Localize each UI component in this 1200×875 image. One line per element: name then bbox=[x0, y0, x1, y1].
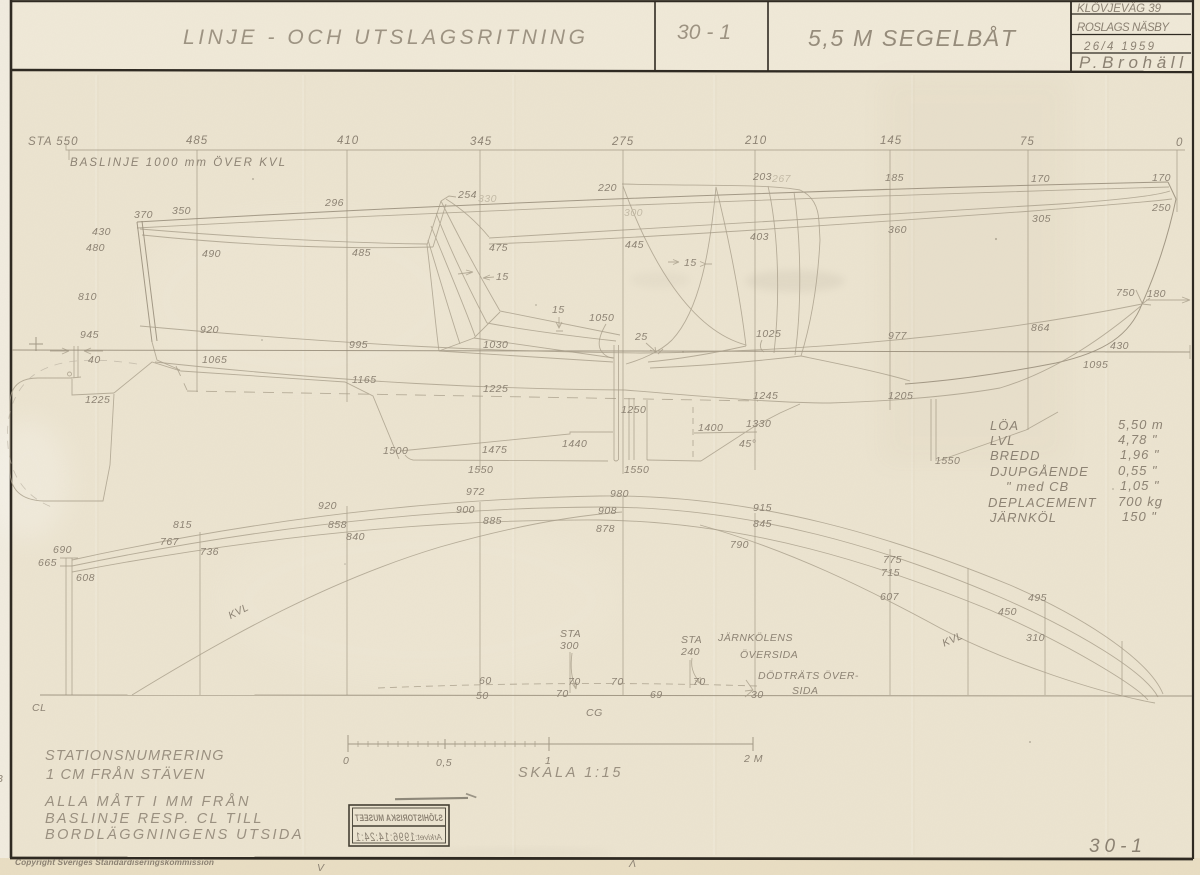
svg-text:26/4 1959: 26/4 1959 bbox=[1083, 41, 1155, 53]
svg-text:1550: 1550 bbox=[468, 464, 493, 476]
svg-text:1050: 1050 bbox=[589, 312, 614, 324]
svg-text:150 ": 150 " bbox=[1122, 509, 1157, 524]
svg-text:480: 480 bbox=[86, 242, 105, 254]
svg-text:845: 845 bbox=[753, 518, 772, 530]
svg-text:Arkivet:: Arkivet: bbox=[415, 833, 443, 842]
svg-text:495: 495 bbox=[1028, 592, 1047, 604]
svg-text:ÖVERSIDA: ÖVERSIDA bbox=[740, 649, 798, 661]
svg-text:840: 840 bbox=[346, 531, 365, 543]
svg-text:300: 300 bbox=[624, 207, 643, 219]
svg-text:30-1: 30-1 bbox=[1089, 836, 1144, 857]
svg-text:Λ: Λ bbox=[628, 858, 637, 870]
svg-text:SJÖHISTORISKA MUSEET: SJÖHISTORISKA MUSEET bbox=[354, 813, 443, 823]
svg-text:40: 40 bbox=[88, 354, 101, 366]
svg-text:STA 550: STA 550 bbox=[28, 136, 78, 148]
svg-text:1225: 1225 bbox=[85, 394, 110, 406]
svg-text:1165: 1165 bbox=[352, 374, 377, 386]
svg-text:DÖDTRÄTS ÖVER-: DÖDTRÄTS ÖVER- bbox=[758, 670, 859, 682]
svg-text:145: 145 bbox=[880, 135, 902, 147]
svg-text:345: 345 bbox=[470, 136, 492, 148]
svg-text:485: 485 bbox=[352, 247, 371, 259]
svg-text:775: 775 bbox=[883, 554, 902, 566]
svg-text:15: 15 bbox=[684, 257, 697, 269]
svg-text:2 M: 2 M bbox=[743, 753, 763, 765]
svg-text:1440: 1440 bbox=[562, 438, 587, 450]
svg-text:180: 180 bbox=[1147, 288, 1166, 300]
svg-text:915: 915 bbox=[753, 502, 772, 514]
svg-text:SKALA 1:15: SKALA 1:15 bbox=[518, 765, 622, 781]
svg-text:70: 70 bbox=[556, 688, 569, 700]
svg-text:430: 430 bbox=[1110, 340, 1129, 352]
svg-text:1475: 1475 bbox=[482, 444, 507, 456]
svg-text:475: 475 bbox=[489, 242, 508, 254]
svg-text:445: 445 bbox=[625, 239, 644, 251]
svg-text:0,55 ": 0,55 " bbox=[1118, 463, 1158, 478]
svg-text:665: 665 bbox=[38, 557, 57, 569]
svg-text:700 kg: 700 kg bbox=[1118, 494, 1163, 509]
svg-text:1550: 1550 bbox=[935, 455, 960, 467]
svg-text:5,5 M SEGELBÅT: 5,5 M SEGELBÅT bbox=[808, 24, 1018, 51]
svg-text:STA: STA bbox=[560, 628, 581, 640]
svg-text:60: 60 bbox=[479, 675, 492, 687]
svg-text:1245: 1245 bbox=[753, 390, 778, 402]
svg-text:1 CM FRÅN STÄVEN: 1 CM FRÅN STÄVEN bbox=[46, 766, 206, 783]
svg-text:885: 885 bbox=[483, 515, 502, 527]
svg-text:485: 485 bbox=[186, 135, 208, 147]
svg-text:170: 170 bbox=[1031, 173, 1050, 185]
svg-text:" med CB: " med CB bbox=[1006, 479, 1069, 494]
svg-text:240: 240 bbox=[680, 646, 700, 658]
svg-text:995: 995 bbox=[349, 339, 368, 351]
svg-text:50: 50 bbox=[476, 690, 489, 702]
svg-text:310: 310 bbox=[1026, 632, 1045, 644]
svg-text:607: 607 bbox=[880, 591, 900, 603]
svg-text:370: 370 bbox=[134, 209, 153, 221]
svg-text:JÄRNKÖL: JÄRNKÖL bbox=[989, 510, 1057, 525]
svg-text:0: 0 bbox=[1176, 137, 1183, 149]
svg-text:70: 70 bbox=[611, 676, 624, 688]
svg-text:920: 920 bbox=[200, 324, 219, 336]
svg-text:BASLINJE 1000 mm ÖVER KVL: BASLINJE 1000 mm ÖVER KVL bbox=[70, 157, 286, 169]
svg-text:1025: 1025 bbox=[756, 328, 781, 340]
svg-text:815: 815 bbox=[173, 519, 192, 531]
svg-text:1065: 1065 bbox=[202, 354, 227, 366]
svg-text:977: 977 bbox=[888, 330, 908, 342]
svg-text:1550: 1550 bbox=[624, 464, 649, 476]
svg-text:BORDLÄGGNINGENS UTSIDA: BORDLÄGGNINGENS UTSIDA bbox=[45, 826, 303, 843]
svg-text:15: 15 bbox=[496, 271, 509, 283]
svg-text:JÄRNKÖLENS: JÄRNKÖLENS bbox=[717, 632, 793, 644]
svg-text:1,05 ": 1,05 " bbox=[1120, 478, 1160, 493]
svg-text:972: 972 bbox=[466, 486, 485, 498]
svg-text:KLÖVJEVÄG 39: KLÖVJEVÄG 39 bbox=[1077, 3, 1162, 15]
svg-text:70: 70 bbox=[568, 676, 581, 688]
svg-text:715: 715 bbox=[881, 567, 900, 579]
svg-text:45°: 45° bbox=[739, 438, 756, 450]
svg-text:75: 75 bbox=[1020, 136, 1035, 148]
svg-text:403: 403 bbox=[750, 231, 769, 243]
svg-text:254: 254 bbox=[457, 189, 477, 201]
svg-text:864: 864 bbox=[1031, 322, 1050, 334]
svg-text:5,50 m: 5,50 m bbox=[1118, 417, 1164, 432]
svg-text:490: 490 bbox=[202, 248, 221, 260]
svg-text:810: 810 bbox=[78, 291, 97, 303]
svg-text:25: 25 bbox=[634, 331, 648, 343]
svg-text:410: 410 bbox=[337, 135, 359, 147]
svg-text:690: 690 bbox=[53, 544, 72, 556]
svg-text:0,5: 0,5 bbox=[436, 757, 452, 769]
svg-text:V: V bbox=[317, 862, 325, 874]
svg-text:296: 296 bbox=[324, 197, 344, 209]
svg-text:CG: CG bbox=[586, 707, 603, 719]
svg-text:430: 430 bbox=[92, 226, 111, 238]
svg-text:BASLINJE RESP. CL TILL: BASLINJE RESP. CL TILL bbox=[45, 811, 263, 827]
svg-text:ALLA MÅTT I MM FRÅN: ALLA MÅTT I MM FRÅN bbox=[44, 793, 250, 810]
svg-text:DJUPGÅENDE: DJUPGÅENDE bbox=[990, 464, 1089, 479]
svg-text:15: 15 bbox=[552, 304, 565, 316]
svg-text:CL: CL bbox=[32, 702, 46, 714]
svg-text:0: 0 bbox=[343, 755, 349, 767]
svg-text:945: 945 bbox=[80, 329, 99, 341]
svg-text:203: 203 bbox=[752, 171, 772, 183]
svg-text:608: 608 bbox=[76, 572, 95, 584]
svg-text:Copyright Sveriges Standardise: Copyright Sveriges Standardiseringskommi… bbox=[15, 857, 214, 867]
svg-text:LVL: LVL bbox=[990, 433, 1015, 448]
svg-text:220: 220 bbox=[597, 182, 617, 194]
svg-text:1996:14:24:1: 1996:14:24:1 bbox=[355, 832, 415, 844]
svg-text:69: 69 bbox=[650, 689, 663, 701]
svg-text:30: 30 bbox=[751, 689, 764, 701]
svg-text:1225: 1225 bbox=[483, 383, 508, 395]
svg-text:70: 70 bbox=[693, 676, 706, 688]
svg-text:1205: 1205 bbox=[888, 390, 913, 402]
svg-text:736: 736 bbox=[200, 546, 219, 558]
svg-text:920: 920 bbox=[318, 500, 337, 512]
svg-text:4,78 ": 4,78 " bbox=[1118, 432, 1158, 447]
svg-text:30 - 1: 30 - 1 bbox=[677, 21, 735, 44]
svg-text:STATIONSNUMRERING: STATIONSNUMRERING bbox=[45, 748, 225, 764]
svg-text:750: 750 bbox=[1116, 287, 1135, 299]
svg-text:900: 900 bbox=[456, 504, 475, 516]
svg-text:1030: 1030 bbox=[483, 339, 508, 351]
svg-text:275: 275 bbox=[611, 136, 634, 148]
svg-text:STA: STA bbox=[681, 634, 702, 646]
svg-text:250: 250 bbox=[1151, 202, 1171, 214]
svg-text:1330: 1330 bbox=[746, 418, 771, 430]
svg-text:ROSLAGS NÄSBY: ROSLAGS NÄSBY bbox=[1077, 22, 1170, 34]
svg-text:300: 300 bbox=[560, 640, 579, 652]
svg-text:878: 878 bbox=[596, 523, 615, 535]
svg-text:1,96 ": 1,96 " bbox=[1120, 447, 1160, 462]
svg-text:305: 305 bbox=[1032, 213, 1051, 225]
svg-text:450: 450 bbox=[998, 606, 1017, 618]
svg-text:980: 980 bbox=[610, 488, 629, 500]
svg-text:210: 210 bbox=[744, 135, 767, 147]
svg-text:1500: 1500 bbox=[383, 445, 408, 457]
svg-text:SIDA: SIDA bbox=[792, 685, 819, 697]
svg-text:350: 350 bbox=[172, 205, 191, 217]
svg-text:858: 858 bbox=[328, 519, 347, 531]
svg-text:790: 790 bbox=[730, 539, 749, 551]
svg-text:1400: 1400 bbox=[698, 422, 723, 434]
svg-text:330: 330 bbox=[478, 193, 497, 205]
svg-text:170: 170 bbox=[1152, 172, 1171, 184]
svg-text:BREDD: BREDD bbox=[990, 448, 1041, 463]
svg-text:1095: 1095 bbox=[1083, 359, 1108, 371]
svg-text:LÖA: LÖA bbox=[990, 418, 1019, 433]
svg-text:B: B bbox=[0, 773, 4, 785]
svg-text:767: 767 bbox=[160, 536, 180, 548]
svg-text:LINJE - OCH UTSLAGSRITNING: LINJE - OCH UTSLAGSRITNING bbox=[183, 26, 589, 49]
svg-text:267: 267 bbox=[771, 173, 792, 185]
svg-text:360: 360 bbox=[888, 224, 907, 236]
svg-text:185: 185 bbox=[885, 172, 904, 184]
svg-text:1250: 1250 bbox=[621, 404, 646, 416]
svg-text:908: 908 bbox=[598, 505, 617, 517]
svg-text:DEPLACEMENT: DEPLACEMENT bbox=[988, 495, 1097, 510]
